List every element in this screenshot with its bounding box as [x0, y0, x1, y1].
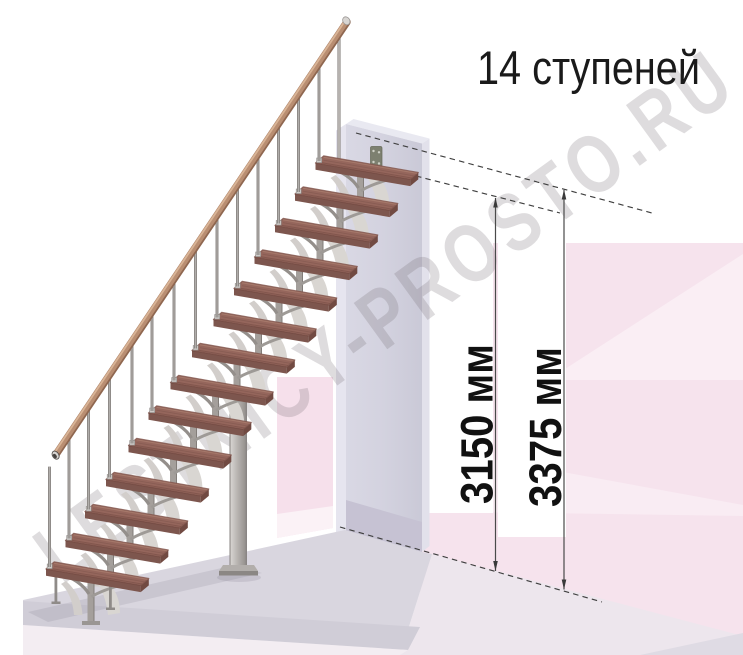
svg-text:3150 мм: 3150 мм: [452, 344, 503, 504]
svg-text:14 ступеней: 14 ступеней: [477, 41, 700, 94]
svg-text:3375 мм: 3375 мм: [520, 347, 571, 507]
